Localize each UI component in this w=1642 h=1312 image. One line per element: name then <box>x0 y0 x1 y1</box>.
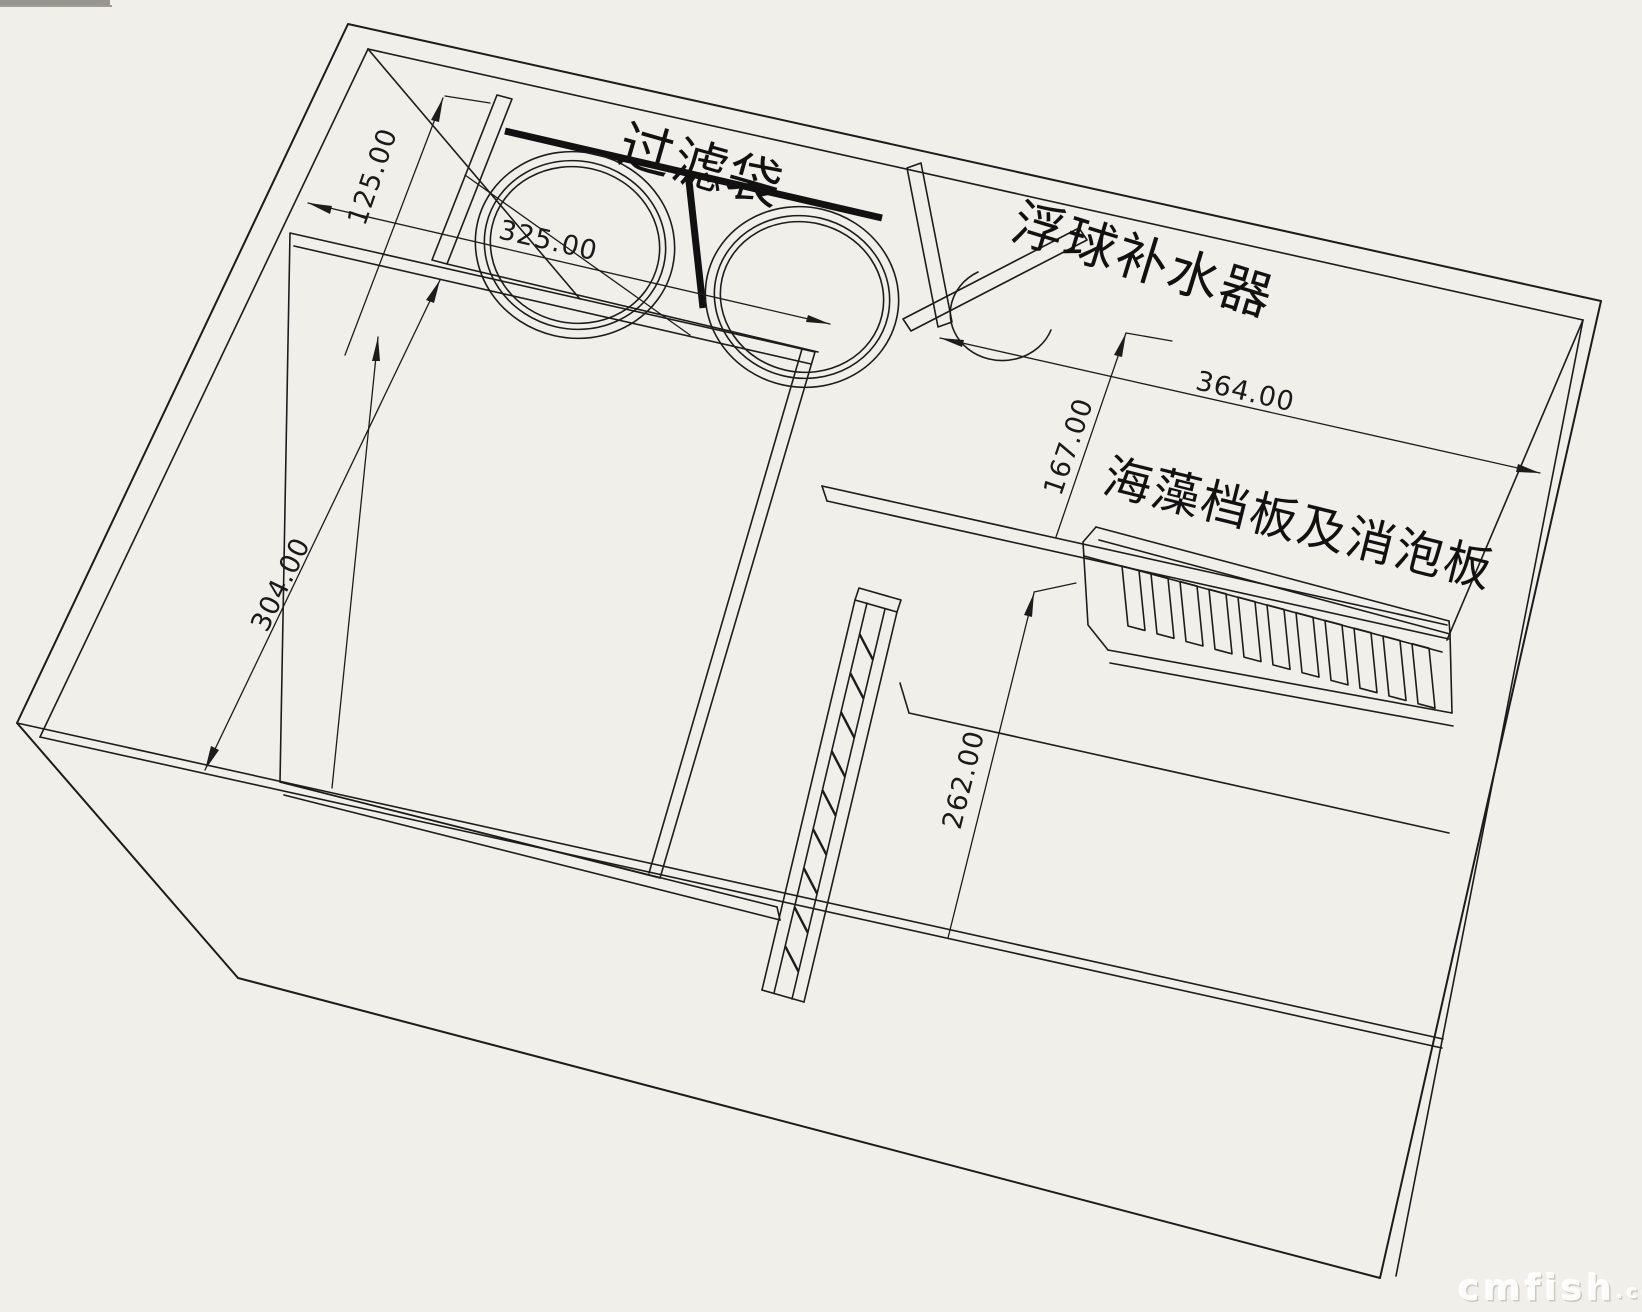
cad-drawing-page: 125.00 325.00 304.00 364.00 167.00 262.0… <box>0 0 1642 1312</box>
paper-texture <box>0 0 1642 1312</box>
watermark-brand: cmfish <box>1458 1268 1616 1309</box>
watermark: cmfish.com <box>1458 1268 1642 1309</box>
sump-tank-wireframe: 125.00 325.00 304.00 364.00 167.00 262.0… <box>0 0 1642 1312</box>
window-chrome-fragment <box>0 0 112 7</box>
watermark-suffix: .com <box>1616 1282 1642 1303</box>
